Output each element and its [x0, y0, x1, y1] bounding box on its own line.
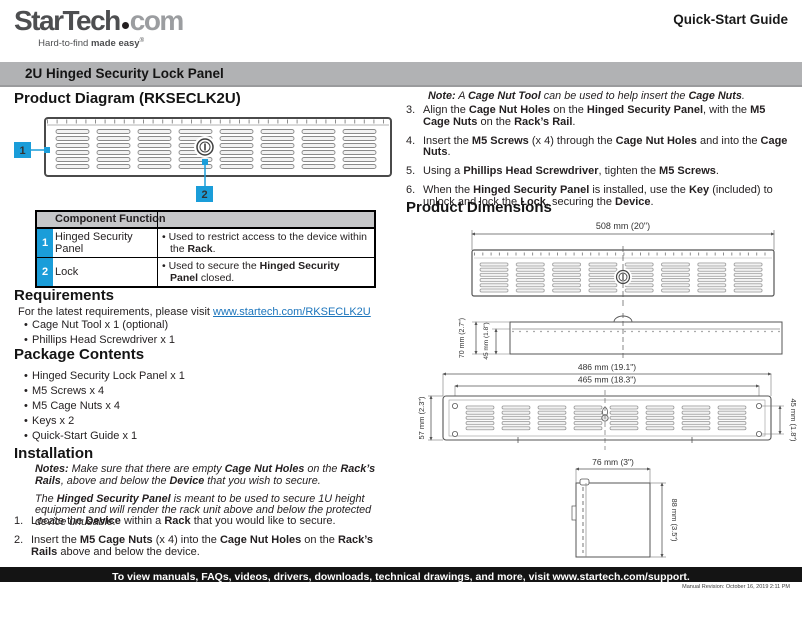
dim-side-width-label: 76 mm (3"): [592, 457, 634, 467]
step-number: 2.: [14, 535, 31, 547]
table-header-label: Component Function: [37, 212, 157, 227]
dimension-drawing-top: 70 mm (2.7") 45 mm (1.8"): [452, 310, 792, 364]
logo-tagline: Hard-to-find made easy®: [14, 38, 144, 49]
dimension-drawing-side: 76 mm (3") 88 mm (3.5"): [540, 456, 725, 562]
component-cell: Lock: [53, 258, 157, 286]
dimension-drawing-front: 508 mm (20"): [462, 220, 792, 310]
product-title: 2U Hinged Security Lock Panel: [25, 62, 802, 85]
dim-top-inner-label: 45 mm (1.8"): [483, 322, 490, 359]
table-header-divider: [157, 212, 374, 227]
step-number: 5.: [406, 166, 423, 178]
bullet-glyph: •: [24, 429, 32, 444]
dim-front-width-label: 508 mm (20"): [596, 221, 650, 231]
requirements-intro-text: For the latest requirements, please visi…: [18, 306, 213, 318]
logo-tagline-text: Hard-to-find made easy: [38, 38, 139, 49]
install-step-5: 5.Using a Phillips Head Screwdriver, tig…: [406, 166, 790, 178]
product-title-banner: 2U Hinged Security Lock Panel: [0, 62, 802, 87]
row-number-badge: 2: [37, 258, 53, 286]
product-page-link[interactable]: www.startech.com/RKSECLK2U: [213, 306, 371, 318]
table-row-hinged-panel: 1 Hinged Security Panel • Used to restri…: [37, 229, 374, 257]
package-contents-list: •Hinged Security Lock Panel x 1 •M5 Scre…: [24, 369, 185, 444]
component-table-header: Component Function: [37, 212, 374, 229]
product-diagram: 1 2: [14, 112, 392, 211]
step-number: 4.: [406, 136, 423, 148]
support-banner-text: To view manuals, FAQs, videos, drivers, …: [112, 571, 690, 583]
bullet-glyph: •: [24, 318, 32, 333]
panel-vents: [54, 128, 382, 170]
note-paragraph: Notes: Make sure that there are empty Ca…: [35, 464, 383, 488]
installation-heading: Installation: [14, 445, 93, 462]
screw-hole: [756, 403, 761, 408]
list-item: •Cage Nut Tool x 1 (optional): [24, 318, 175, 333]
product-diagram-svg: 1 2: [14, 112, 392, 206]
top-body: [510, 322, 782, 354]
lock-icon: [197, 139, 213, 155]
logo-com: com: [130, 5, 183, 36]
install-step-1: 1.Locate the Device within a Rack that y…: [14, 516, 386, 528]
side-body: [576, 483, 650, 557]
dimension-drawing-rear: 486 mm (19.1") 465 mm (18.3") 57 mm (2.3…: [418, 362, 798, 458]
step-number: 6.: [406, 185, 423, 197]
requirements-heading: Requirements: [14, 287, 114, 304]
list-item: •Quick-Start Guide x 1: [24, 429, 185, 444]
dim-rear-outer-label: 486 mm (19.1"): [578, 362, 636, 372]
component-table: Component Function 1 Hinged Security Pan…: [35, 210, 376, 288]
screw-hole: [452, 431, 457, 436]
list-item: •Hinged Security Lock Panel x 1: [24, 369, 185, 384]
logo-tech: Tech: [62, 5, 119, 36]
dim-rear-inner-label: 465 mm (18.3"): [578, 375, 636, 385]
support-banner: To view manuals, FAQs, videos, drivers, …: [0, 567, 802, 582]
installation-steps: 1.Locate the Device within a Rack that y…: [14, 516, 386, 565]
screw-hole: [756, 431, 761, 436]
dim-rear-right-label: 45 mm (1.8"): [789, 398, 798, 442]
logo-dot: [122, 22, 129, 29]
dim-top-depth-label: 70 mm (2.7"): [459, 318, 466, 358]
step-number: 1.: [14, 516, 31, 528]
logo-star: Star: [14, 5, 62, 36]
install-step-4: 4.Insert the M5 Screws (x 4) through the…: [406, 136, 790, 160]
product-dimensions-heading: Product Dimensions: [406, 199, 552, 216]
dim-rear-left-label: 57 mm (2.3"): [418, 396, 426, 440]
component-cell: Hinged Security Panel: [53, 229, 157, 257]
dim-side-height-label: 88 mm (3.5"): [670, 498, 679, 542]
step-number: 3.: [406, 105, 423, 117]
bullet-glyph: •: [24, 369, 32, 384]
bullet-glyph: •: [24, 384, 32, 399]
requirements-list: •Cage Nut Tool x 1 (optional) •Phillips …: [24, 318, 175, 348]
function-cell: • Used to secure the Hinged Security Pan…: [157, 258, 374, 286]
list-item: •Keys x 2: [24, 414, 185, 429]
bullet-glyph: •: [24, 399, 32, 414]
row-number-badge: 1: [37, 229, 53, 257]
bullet-glyph: •: [24, 414, 32, 429]
svg-text:2: 2: [201, 189, 207, 201]
registered-mark: ®: [140, 38, 144, 44]
table-row-lock: 2 Lock • Used to secure the Hinged Secur…: [37, 257, 374, 286]
package-contents-heading: Package Contents: [14, 346, 144, 363]
side-latch: [572, 506, 576, 520]
side-hinge-knob: [580, 479, 589, 485]
function-cell: • Used to restrict access to the device …: [157, 229, 374, 257]
doc-type-label: Quick-Start Guide: [673, 12, 788, 27]
install-step-2: 2.Insert the M5 Cage Nuts (x 4) into the…: [14, 535, 386, 559]
list-item: •M5 Screws x 4: [24, 384, 185, 399]
screw-hole: [452, 403, 457, 408]
manual-revision-text: Manual Revision: October 16, 2019 2:11 P…: [682, 584, 790, 590]
product-diagram-heading: Product Diagram (RKSECLK2U): [14, 90, 241, 107]
svg-text:1: 1: [19, 145, 25, 157]
startech-logo: StarTechcom: [14, 6, 183, 36]
install-step-3: 3.Align the Cage Nut Holes on the Hinged…: [406, 105, 790, 129]
list-item: •M5 Cage Nuts x 4: [24, 399, 185, 414]
